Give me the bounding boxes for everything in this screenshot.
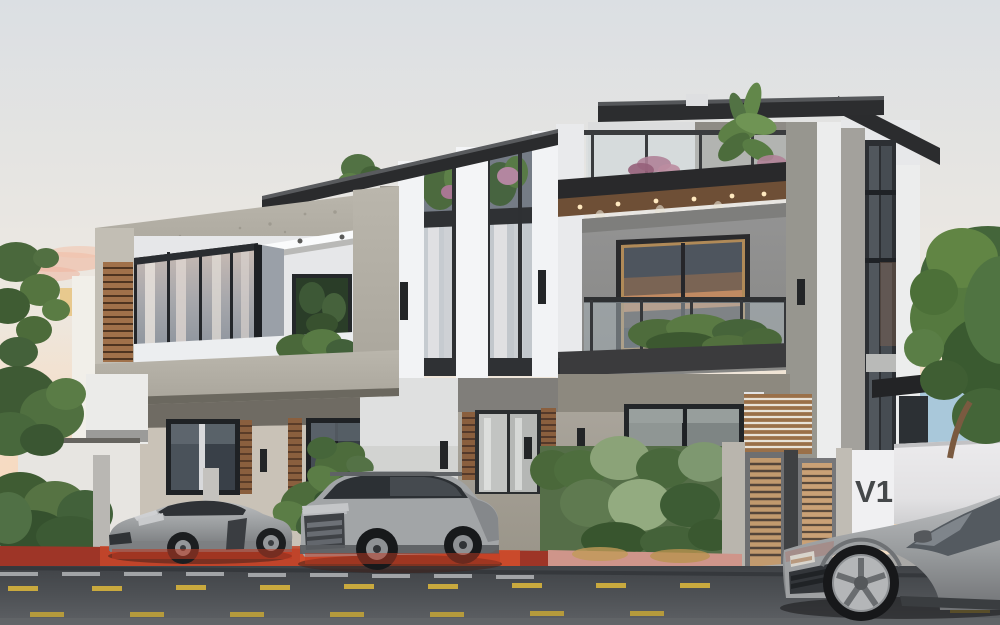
svg-text:V1: V1 — [855, 474, 893, 509]
